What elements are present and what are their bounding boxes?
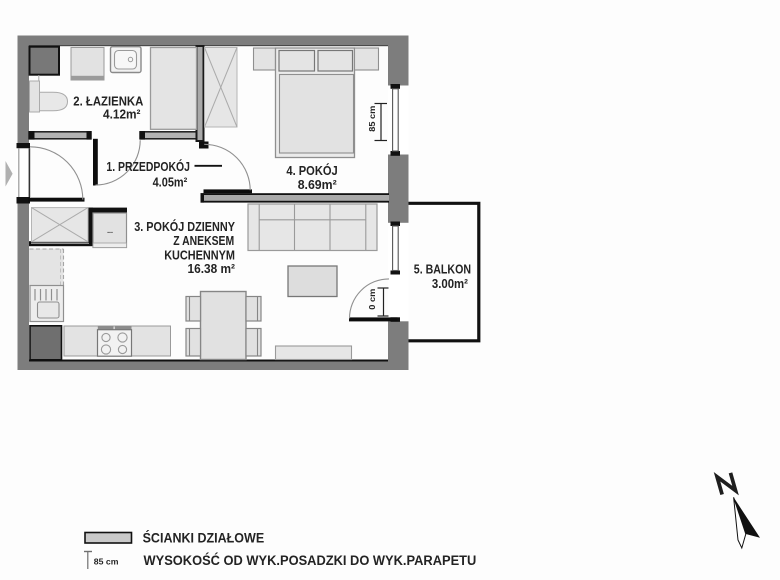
- svg-text:4.12m²: 4.12m²: [103, 106, 141, 121]
- svg-text:0 cm: 0 cm: [367, 288, 377, 309]
- svg-text:ŚCIANKI DZIAŁOWE: ŚCIANKI DZIAŁOWE: [143, 531, 265, 546]
- svg-text:85 cm: 85 cm: [367, 105, 377, 131]
- svg-text:WYSOKOŚĆ OD WYK.POSADZKI DO WY: WYSOKOŚĆ OD WYK.POSADZKI DO WYK.PARAPETU: [144, 553, 477, 568]
- svg-text:4.05m²: 4.05m²: [153, 175, 188, 190]
- svg-text:1. PRZEDPOKÓJ: 1. PRZEDPOKÓJ: [106, 159, 190, 174]
- svg-text:3. POKÓJ DZIENNY: 3. POKÓJ DZIENNY: [134, 219, 235, 234]
- svg-text:8.69m²: 8.69m²: [298, 177, 338, 192]
- svg-text:5. BALKON: 5. BALKON: [414, 261, 471, 276]
- svg-text:...: ...: [107, 228, 113, 235]
- svg-text:3.00m²: 3.00m²: [432, 276, 469, 291]
- svg-text:85 cm: 85 cm: [94, 557, 119, 567]
- svg-text:Z ANEKSEM: Z ANEKSEM: [173, 233, 234, 248]
- svg-text:16.38 m²: 16.38 m²: [188, 261, 236, 276]
